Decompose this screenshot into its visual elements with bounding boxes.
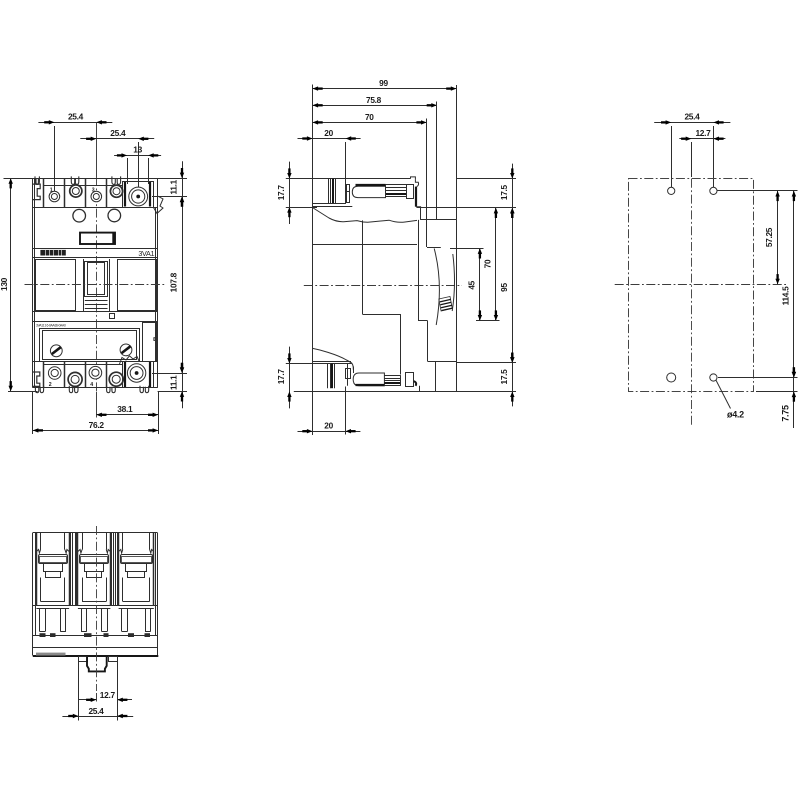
svg-text:25.4: 25.4 [110, 128, 126, 138]
svg-text:12.7: 12.7 [695, 128, 711, 138]
svg-text:17.7: 17.7 [276, 369, 286, 385]
svg-text:20: 20 [324, 128, 333, 138]
svg-text:25.4: 25.4 [88, 706, 104, 716]
svg-text:38.1: 38.1 [117, 404, 133, 414]
svg-text:3: 3 [92, 188, 95, 194]
svg-text:12.7: 12.7 [100, 690, 116, 700]
svg-text:4: 4 [90, 382, 93, 388]
svg-text:20: 20 [324, 421, 333, 431]
svg-text:11.1: 11.1 [170, 179, 179, 194]
svg-text:25.4: 25.4 [684, 112, 700, 122]
svg-text:17.7: 17.7 [276, 185, 286, 201]
svg-text:45: 45 [467, 280, 477, 289]
svg-text:107.8: 107.8 [169, 272, 179, 292]
svg-text:1: 1 [50, 188, 53, 194]
svg-text:114.5: 114.5 [781, 286, 791, 305]
svg-text:99: 99 [379, 78, 388, 88]
svg-text:130: 130 [0, 277, 9, 291]
svg-text:7.75: 7.75 [781, 405, 791, 422]
svg-text:17.5: 17.5 [499, 184, 509, 200]
svg-text:95: 95 [499, 283, 509, 292]
svg-text:75.8: 75.8 [366, 95, 382, 105]
svg-text:2: 2 [49, 382, 52, 388]
svg-text:57.25: 57.25 [764, 227, 774, 247]
svg-text:11.1: 11.1 [170, 375, 179, 390]
svg-text:ø4.2: ø4.2 [727, 410, 744, 420]
svg-text:25.4: 25.4 [68, 112, 84, 122]
svg-text:70: 70 [365, 112, 374, 122]
svg-text:3VA11 1 6-0AA36-0AA0: 3VA11 1 6-0AA36-0AA0 [36, 324, 66, 328]
svg-text:13: 13 [133, 145, 142, 155]
svg-text:17.5: 17.5 [499, 369, 509, 385]
svg-text:76.2: 76.2 [89, 420, 105, 430]
svg-text:70: 70 [483, 259, 493, 268]
svg-text:3VA1: 3VA1 [138, 249, 154, 258]
